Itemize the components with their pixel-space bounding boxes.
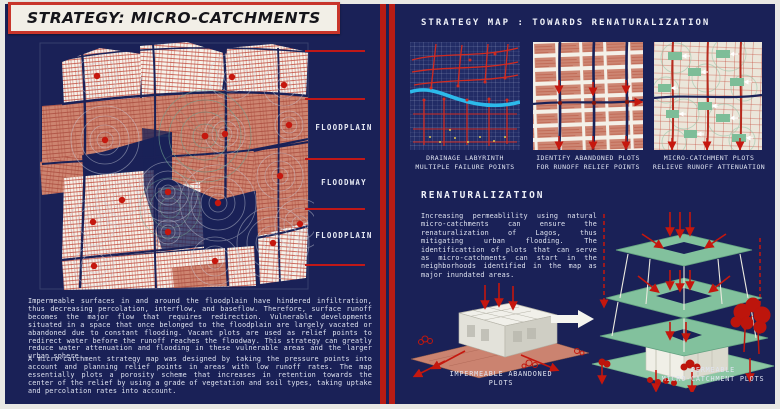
permeable-plot-diagram: [590, 212, 776, 392]
page-title: STRATEGY: MICRO-CATCHMENTS: [8, 2, 340, 34]
abandoned-plots-map: [533, 42, 643, 150]
zone-line: [305, 98, 365, 100]
panel-divider-bar: [380, 4, 386, 404]
transition-arrow-icon: [551, 309, 595, 329]
zone-line: [305, 208, 365, 210]
drainage-labyrinth-map: [410, 42, 520, 150]
left-paragraph-1: Impermeable surfaces in and around the f…: [28, 298, 372, 361]
renaturalization-paragraph: Increasing permeablility using natural m…: [421, 212, 597, 279]
impermeable-plot-diagram: [409, 281, 591, 379]
caption-abandoned-plots: IDENTIFY ABANDONED PLOTS FOR RUNOFF RELI…: [527, 154, 649, 172]
presentation-page: STRATEGY: MICRO-CATCHMENTS: [0, 0, 780, 409]
zone-line: [305, 158, 365, 160]
strategy-map-heading: STRATEGY MAP : TOWARDS RENATURALIZATION: [421, 18, 710, 28]
panel-divider-bar: [389, 4, 395, 404]
zone-label-floodplain-upper: FLOODPLAIN: [306, 123, 382, 132]
zone-line: [305, 264, 365, 266]
micro-catchment-plots-map: [654, 42, 762, 150]
zone-label-floodplain-lower: FLOODPLAIN: [306, 231, 382, 240]
left-paragraph-2: A micro-catchment strategy map was desig…: [28, 356, 372, 396]
micro-catchment-strategy-map: [22, 40, 314, 292]
zone-line: [305, 50, 365, 52]
caption-drainage-labyrinth: DRAINAGE LABYRINTH MULTIPLE FAILURE POIN…: [404, 154, 526, 172]
renaturalization-heading: RENATURALIZATION: [421, 190, 545, 201]
zone-label-floodway: FLOODWAY: [306, 178, 382, 187]
impermeable-plots-label: IMPERMEABLE ABANDONED PLOTS: [420, 370, 582, 388]
page-title-text: STRATEGY: MICRO-CATCHMENTS: [27, 9, 321, 27]
caption-micro-catchment-plots: MICRO-CATCHMENT PLOTS RELIEVE RUNOFF ATT…: [648, 154, 770, 172]
permeable-plots-label: PERMEABLE MICRO-CATCHMENT PLOTS: [632, 366, 780, 384]
